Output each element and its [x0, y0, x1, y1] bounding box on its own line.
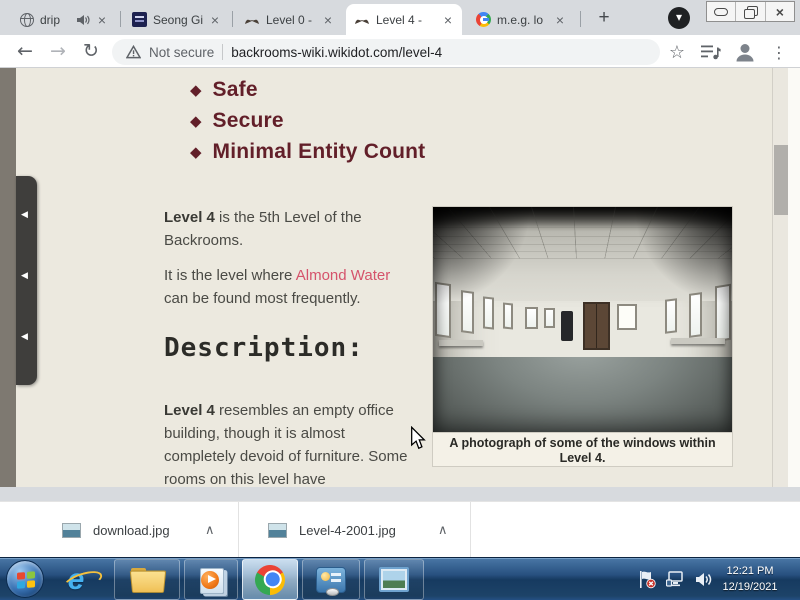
- audio-speaker-icon[interactable]: [77, 14, 90, 26]
- media-player-icon: [196, 567, 226, 593]
- taskbar-file-explorer[interactable]: [114, 559, 180, 600]
- browser-toolbar: ← → ↻ Not secure backrooms-wiki.wikidot.…: [0, 35, 800, 68]
- reading-list-button[interactable]: [698, 39, 724, 65]
- windows-logo-pane: [27, 580, 35, 588]
- network-icon[interactable]: [666, 571, 685, 588]
- almond-water-paragraph: It is the level where Almond Water can b…: [164, 264, 406, 310]
- tab-title: m.e.g. lo: [497, 13, 548, 27]
- download-filename: Level-4-2001.jpg: [299, 523, 396, 538]
- tab-level-4-active[interactable]: Level 4 - ×: [346, 4, 462, 35]
- close-icon[interactable]: ×: [442, 13, 454, 27]
- tab-title: drip: [40, 13, 71, 27]
- windows-logo-pane: [17, 581, 25, 589]
- restore-icon: [744, 6, 757, 18]
- attribute-list-item: ◆ Secure: [190, 109, 284, 133]
- bold-text: Level 4: [164, 402, 215, 419]
- close-icon[interactable]: ×: [554, 13, 566, 27]
- reload-button[interactable]: ↻: [78, 39, 104, 65]
- clock-date: 12/19/2021: [710, 579, 790, 595]
- media-controls-button[interactable]: ▾: [668, 7, 690, 29]
- downloads-bar: download.jpg ∧ Level-4-2001.jpg ∧ Show a…: [0, 501, 800, 557]
- windows-logo-pane: [17, 572, 25, 580]
- tab-title: Level 4 -: [376, 13, 436, 27]
- action-center-flag-icon[interactable]: [639, 570, 656, 589]
- tab-separator: [580, 11, 581, 27]
- windows-logo-pane: [27, 571, 35, 579]
- url-text: backrooms-wiki.wikidot.com/level-4: [231, 45, 442, 60]
- attribute-list-item: ◆ Minimal Entity Count: [190, 140, 425, 164]
- close-window-button[interactable]: ×: [765, 2, 794, 21]
- system-tray: [634, 558, 718, 600]
- screen: drip × Seong Gi × Level 0 - × Level 4 -: [0, 0, 800, 600]
- windows-logo-icon: [17, 571, 35, 589]
- image-file-icon: [268, 523, 287, 538]
- collapse-arrow-icon[interactable]: ◀: [21, 332, 28, 342]
- diamond-bullet-icon: ◆: [190, 112, 202, 130]
- google-icon: [476, 12, 491, 27]
- mouse-icon: [326, 588, 339, 596]
- globe-icon: [20, 13, 34, 27]
- close-icon[interactable]: ×: [322, 13, 334, 27]
- taskbar-control-panel[interactable]: [302, 559, 360, 600]
- minimize-button[interactable]: [707, 2, 735, 21]
- backrooms-wiki-icon: [244, 14, 260, 26]
- taskbar-internet-explorer[interactable]: e: [50, 559, 102, 600]
- download-item[interactable]: Level-4-2001.jpg: [268, 502, 396, 558]
- three-dot-menu-icon: ⋮: [771, 43, 787, 62]
- close-icon[interactable]: ×: [96, 13, 108, 27]
- mouse-cursor: [410, 426, 426, 455]
- photo-viewer-icon: [379, 567, 409, 592]
- image-file-icon: [62, 523, 81, 538]
- star-icon: ☆: [669, 42, 685, 63]
- window-controls: ×: [706, 1, 795, 22]
- close-icon: ×: [776, 5, 784, 19]
- attribute-label: Safe: [213, 78, 258, 102]
- bookmark-star-button[interactable]: ☆: [664, 39, 690, 65]
- diamond-bullet-icon: ◆: [190, 81, 202, 99]
- diamond-bullet-icon: ◆: [190, 143, 202, 161]
- downloads-separator: [470, 502, 471, 558]
- taskbar-media-player[interactable]: [184, 559, 238, 600]
- paragraph-text: can be found most frequently.: [164, 290, 361, 307]
- profile-button[interactable]: [732, 39, 758, 65]
- avatar-icon: [734, 41, 756, 63]
- tab-drip[interactable]: drip ×: [12, 4, 116, 35]
- tab-seong-gi[interactable]: Seong Gi ×: [124, 4, 229, 35]
- almond-water-link[interactable]: Almond Water: [296, 267, 390, 284]
- tab-title: Level 0 -: [266, 13, 316, 27]
- description-paragraph: Level 4 resembles an empty office buildi…: [164, 399, 410, 487]
- bold-text: Level 4: [164, 209, 215, 226]
- chrome-icon: [250, 559, 291, 600]
- omnibox-divider: [222, 44, 223, 60]
- reading-list-icon: [701, 44, 721, 60]
- download-menu-chevron[interactable]: ∧: [205, 523, 215, 538]
- backrooms-wiki-icon: [354, 14, 370, 26]
- windows-taskbar: e 12:21 PM 12/19/2021: [0, 557, 800, 600]
- photo-detail: [433, 207, 732, 432]
- level-4-photo[interactable]: [432, 206, 733, 433]
- vertical-scrollbar-thumb[interactable]: [774, 145, 788, 215]
- attribute-list-item: ◆ Safe: [190, 78, 258, 102]
- download-menu-chevron[interactable]: ∧: [438, 523, 448, 538]
- know-your-meme-icon: [132, 12, 147, 27]
- clock-time: 12:21 PM: [710, 563, 790, 579]
- new-tab-button[interactable]: +: [592, 6, 616, 30]
- page-viewport: ◀ ◀ ◀ ◆ Safe ◆ Secure ◆ Minimal Entity C…: [0, 68, 800, 487]
- tab-separator: [120, 11, 121, 27]
- minimize-icon: [714, 8, 728, 16]
- downloads-separator: [238, 502, 239, 558]
- collapse-arrow-icon[interactable]: ◀: [21, 210, 28, 220]
- download-filename: download.jpg: [93, 523, 170, 538]
- collapse-arrow-icon[interactable]: ◀: [21, 271, 28, 281]
- close-icon[interactable]: ×: [209, 13, 221, 27]
- restore-button[interactable]: [735, 2, 764, 21]
- attribute-label: Secure: [213, 109, 284, 133]
- tab-level-0[interactable]: Level 0 - ×: [236, 4, 342, 35]
- taskbar-chrome-active[interactable]: [242, 559, 298, 600]
- tab-strip: drip × Seong Gi × Level 0 - × Level 4 -: [0, 0, 800, 35]
- address-bar[interactable]: Not secure backrooms-wiki.wikidot.com/le…: [112, 39, 660, 65]
- photo-caption: A photograph of some of the windows with…: [432, 433, 733, 467]
- taskbar-photo-viewer[interactable]: [364, 559, 424, 600]
- download-item[interactable]: download.jpg: [62, 502, 170, 558]
- internet-explorer-icon: e: [68, 563, 85, 597]
- side-panel-toggle[interactable]: ◀ ◀ ◀: [16, 176, 37, 385]
- paragraph-text: It is the level where: [164, 267, 296, 284]
- forward-button[interactable]: →: [45, 39, 71, 65]
- folder-icon: [131, 568, 163, 592]
- page-side-margin: [0, 68, 16, 487]
- play-icon: [201, 571, 219, 589]
- settings-app-icon: [316, 567, 346, 593]
- description-heading: Description:: [164, 333, 364, 363]
- tab-title: Seong Gi: [153, 13, 203, 27]
- vertical-scrollbar[interactable]: [772, 68, 788, 487]
- attribute-label: Minimal Entity Count: [213, 140, 426, 164]
- start-button[interactable]: [6, 560, 44, 598]
- browser-menu-button[interactable]: ⋮: [766, 39, 792, 65]
- not-secure-warning-icon: [126, 45, 141, 59]
- taskbar-clock[interactable]: 12:21 PM 12/19/2021: [710, 563, 790, 595]
- back-button[interactable]: ←: [12, 39, 38, 65]
- window-right-edge: [788, 68, 800, 487]
- tab-separator: [232, 11, 233, 27]
- tab-meg[interactable]: m.e.g. lo ×: [468, 4, 574, 35]
- intro-paragraph: Level 4 is the 5th Level of the Backroom…: [164, 206, 406, 252]
- security-label: Not secure: [149, 45, 214, 60]
